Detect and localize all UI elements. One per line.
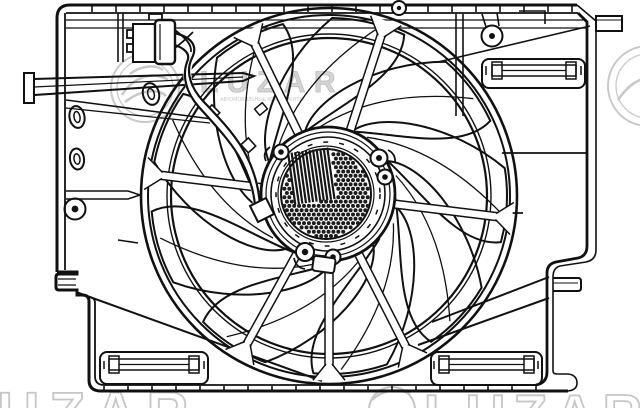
svg-text:LUZAR: LUZAR bbox=[424, 383, 640, 408]
